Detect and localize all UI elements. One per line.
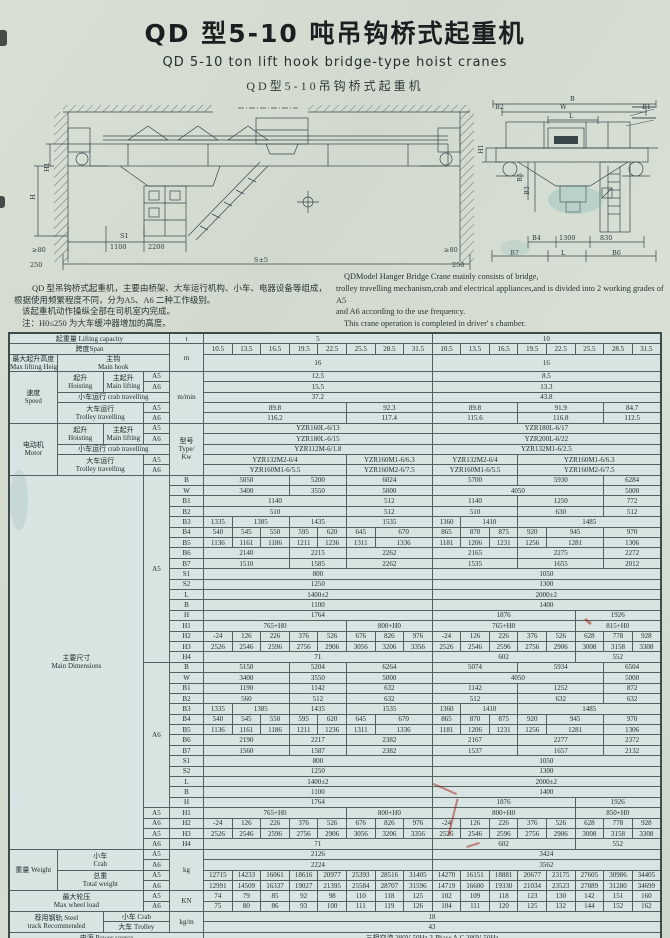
dimension-label: B2 [495,104,504,111]
row-label-cell: B6 [169,548,203,558]
row-label-cell: A6 [143,818,169,828]
value-cell: 1186 [261,538,290,548]
value-cell: 2224 [204,860,433,870]
value-cell: YZR160M1-6/6.3 [346,454,432,464]
value-cell: 13.3 [432,382,661,392]
value-cell: 1510 [204,558,290,568]
row-label-cell: A6 [143,382,169,392]
value-cell: 5000 [346,486,432,496]
value-cell: 118 [375,891,404,901]
value-cell: 1360 [432,704,461,714]
value-cell: 13.5 [461,344,490,354]
value-cell: 92 [289,891,318,901]
value-cell: 976 [404,818,433,828]
value-cell: 28.5 [604,344,633,354]
value-cell: 800+H0 [346,808,432,818]
row-label-cell: A5 [143,849,169,859]
value-cell: 2262 [346,548,432,558]
note-line: This crane operation is completed in dri… [336,318,666,330]
value-cell: 1231 [489,725,518,735]
value-cell: 1140 [204,496,347,506]
value-cell: 1335 [204,704,233,714]
value-cell: 126 [232,818,261,828]
row-label-cell: A5 [143,891,169,901]
value-cell: 1400 [432,787,661,797]
value-cell: 2275 [518,548,604,558]
value-cell: 510 [204,506,347,516]
value-cell: 1281 [547,725,604,735]
dimension-label: B [570,96,575,103]
value-cell: 2012 [604,558,661,568]
value-cell: -24 [432,818,461,828]
table-row: 最大轮压Max wheel loadA5KN747985929811011812… [9,891,661,901]
value-cell: 31596 [404,880,433,890]
value-cell: 5000 [346,673,432,683]
value-cell: 3056 [346,828,375,838]
row-label-cell: B5 [169,725,203,735]
value-cell: 25.5 [346,344,375,354]
row-label-cell: H1 [169,621,203,631]
value-cell: 1140 [432,496,518,506]
value-cell: 512 [604,506,661,516]
value-cell: 79 [232,891,261,901]
value-cell: 1161 [232,538,261,548]
value-cell: 126 [461,631,490,641]
value-cell: 100 [318,901,347,911]
value-cell: 632 [604,693,661,703]
row-label-cell: B [169,475,203,485]
dimension-label: L [569,113,573,120]
value-cell: 2382 [346,735,432,745]
value-cell: 12715 [204,870,233,880]
value-cell: 111 [461,901,490,911]
value-cell: 16600 [461,880,490,890]
row-label-cell: 电动机Motor [9,423,57,475]
value-cell: 20977 [318,870,347,880]
value-cell: 1435 [289,704,346,714]
value-cell: 31280 [604,880,633,890]
row-label-cell: B1 [169,683,203,693]
value-cell: 3008 [575,641,604,651]
value-cell: 2546 [232,828,261,838]
specification-table: 起重量 Lifting capacityt510跨度Spanm10.513.51… [8,332,662,938]
row-label-cell: H2 [169,631,203,641]
value-cell: 3008 [575,828,604,838]
value-cell: 550 [261,714,290,724]
row-label-cell: H3 [169,828,203,838]
value-cell: 117.4 [346,413,432,423]
note-line: 根据使用频繁程度不同，分为A5、A6 二种工作级别。 [14,295,334,307]
value-cell: 23523 [547,880,576,890]
row-label-cell: A5 [143,828,169,838]
value-cell: 5050 [204,475,290,485]
value-cell: 2546 [461,828,490,838]
row-label-cell: B3 [169,517,203,527]
value-cell: 31.5 [632,344,661,354]
value-cell: 16337 [261,880,290,890]
row-label-cell: 起升Hoisting [57,371,103,392]
value-cell: YZR160M1-6/5.5 [204,465,347,475]
value-cell: 16 [432,354,661,371]
value-cell: 628 [575,631,604,641]
value-cell: 18881 [489,870,518,880]
value-cell: 6504 [604,662,661,672]
value-cell: 540 [204,714,233,724]
value-cell: 6264 [346,662,432,672]
value-cell: 1585 [289,558,346,568]
value-cell: 31.5 [404,344,433,354]
value-cell: 5700 [432,475,518,485]
value-cell: 928 [632,631,661,641]
ink-stain [10,470,28,530]
value-cell: 1587 [289,745,346,755]
page-subtitle-en: QD 5-10 ton lift hook bridge-type hoist … [0,55,670,70]
value-cell: 872 [604,683,661,693]
value-cell: 620 [318,714,347,724]
value-cell: 870 [461,527,490,537]
value-cell: 875 [489,527,518,537]
value-cell: 5204 [289,662,346,672]
value-cell: 2372 [604,735,661,745]
value-cell: 3424 [432,849,661,859]
value-cell: 2000±2 [432,589,661,599]
value-cell: 645 [346,714,375,724]
row-label-cell: B6 [169,735,203,745]
value-cell: 1250 [518,496,604,506]
row-label-cell: 总重Total weight [57,870,143,891]
value-cell: 2272 [604,548,661,558]
value-cell: 98 [318,891,347,901]
table-row: 电动机Motor起升Hoisting主起升Main liftingA5型号Typ… [9,423,661,433]
value-cell: 116.8 [518,413,604,423]
value-cell: 27889 [575,880,604,890]
value-cell: 85 [261,891,290,901]
value-cell: 510 [432,506,518,516]
value-cell: 545 [232,527,261,537]
value-cell: 226 [261,631,290,641]
value-cell: 920 [518,527,547,537]
value-cell: 12.5 [204,371,433,381]
value-cell: YZR132M1-6/2.5 [432,444,661,454]
row-label-cell: H4 [169,652,203,662]
value-cell: 1281 [547,538,604,548]
value-cell: 31405 [404,870,433,880]
value-cell: 14509 [232,880,261,890]
value-cell: 89.8 [432,402,518,412]
row-label-cell: A6 [143,465,169,475]
value-cell: 1311 [346,725,375,735]
value-cell: 2526 [432,828,461,838]
value-cell: 23175 [547,870,576,880]
value-cell: 2526 [204,641,233,651]
row-label-cell: A6 [143,413,169,423]
row-label-cell: A6 [143,860,169,870]
value-cell: 25393 [346,870,375,880]
value-cell: 112.5 [604,413,661,423]
page-title: QD 型5-10 吨吊钩桥式起重机 [0,14,670,50]
value-cell: 602 [432,652,575,662]
note-line: QDModel Hanger Bridge Crane mainly consi… [336,271,666,283]
value-cell: 160 [632,891,661,901]
value-cell: 3562 [432,860,661,870]
value-cell: 1764 [204,610,433,620]
value-cell: 5074 [432,662,518,672]
value-cell: 16.5 [489,344,518,354]
value-cell: 89.8 [204,402,347,412]
value-cell: 2215 [289,548,346,558]
illegible-annotation [632,117,656,119]
value-cell: 162 [632,901,661,911]
value-cell: YZR160M2-6/7.5 [518,465,661,475]
value-cell: 552 [575,652,661,662]
dimension-label: 1100 [110,244,127,251]
value-cell: 226 [261,818,290,828]
value-cell: 376 [289,818,318,828]
value-cell: 778 [604,631,633,641]
scan-edge-mark [0,196,5,208]
row-label-cell: A5 [143,423,169,433]
value-cell: 2906 [318,828,347,838]
value-cell: 226 [489,631,518,641]
row-label-cell: L [169,777,203,787]
value-cell: 19.5 [518,344,547,354]
value-cell: 1211 [289,725,318,735]
row-label-cell: t [169,333,203,344]
value-cell: 14270 [432,870,461,880]
value-cell: 19027 [289,880,318,890]
value-cell: 526 [318,631,347,641]
row-label-cell: A5 [143,475,169,662]
row-label-cell: 小车运行 crab travelling [57,444,169,454]
value-cell: 1190 [204,683,290,693]
value-cell: 1311 [346,538,375,548]
row-label-cell: B [169,600,203,610]
value-cell: 22.5 [318,344,347,354]
value-cell: 2756 [289,641,318,651]
value-cell: 37.2 [204,392,433,402]
value-cell: YZR200L-6/22 [432,434,661,444]
notes-chinese: QD 型吊钩桥式起重机，主要由桥架、大车运行机构、小车、电器设备等组成， 根据使… [14,283,334,329]
value-cell: 16.5 [261,344,290,354]
value-cell: 1236 [318,725,347,735]
row-label-cell: A5 [143,870,169,880]
value-cell: 1206 [461,725,490,735]
value-cell: 92.3 [346,402,432,412]
table-row: 荐用钢轨 Steeltrack Recommended小车 Crabkg/m18 [9,912,661,922]
value-cell: 14719 [432,880,461,890]
value-cell: 144 [575,901,604,911]
value-cell: 16151 [461,870,490,880]
value-cell: 1435 [289,517,346,527]
row-label-cell: B4 [169,714,203,724]
dimension-label: B5 [517,173,524,182]
value-cell: 676 [346,818,375,828]
value-cell: 25.5 [575,344,604,354]
ink-stain [500,240,530,256]
value-cell: 12991 [204,880,233,890]
dimension-label: L [561,250,565,257]
value-cell: 1535 [346,704,432,714]
table-row: 小车运行 crab travelling37.243.8 [9,392,661,402]
value-cell: 2596 [489,828,518,838]
value-cell: 1256 [518,725,547,735]
row-label-cell: A5 [143,402,169,412]
value-cell: 2906 [547,828,576,838]
value-cell: 2140 [204,548,290,558]
dimension-label: H1 [44,162,51,172]
value-cell: 75 [204,901,233,911]
row-label-cell: B2 [169,506,203,516]
value-cell: 1764 [204,797,433,807]
value-cell: 2000±2 [432,777,661,787]
value-cell: YZR160M1-6/6.3 [518,454,661,464]
row-label-cell: m/min [169,371,203,423]
ink-stain [548,186,603,214]
value-cell: 1400 [432,600,661,610]
value-cell: -24 [432,631,461,641]
value-cell: 928 [632,818,661,828]
note-line: trolley travelling mechanism,crab and el… [336,283,666,307]
value-cell: 1537 [432,745,518,755]
value-cell: 1400±2 [204,777,433,787]
value-cell: 526 [318,818,347,828]
value-cell: 18616 [289,870,318,880]
value-cell: 632 [346,693,432,703]
dimension-label: 1300 [559,235,576,242]
row-label-cell: 主起升Main lifting [103,371,143,392]
value-cell: 8.5 [432,371,661,381]
value-cell: 540 [204,527,233,537]
value-cell: 632 [518,693,604,703]
row-label-cell: S2 [169,579,203,589]
note-line: 注：H0≤250 为大车缓冲器增加的高度。 [14,318,334,330]
value-cell: 1181 [432,538,461,548]
value-cell: 826 [375,631,404,641]
value-cell: 1485 [518,517,661,527]
value-cell: 1485 [518,704,661,714]
value-cell: 126 [461,818,490,828]
value-cell: 2756 [518,828,547,838]
value-cell: 552 [575,839,661,849]
value-cell: 104 [432,901,461,911]
table-row: 跨度Spanm10.513.516.519.522.525.528.531.51… [9,344,661,354]
row-label-cell: B7 [169,558,203,568]
value-cell: 2546 [461,641,490,651]
dimension-label: B4 [532,235,541,242]
value-cell: 512 [432,693,518,703]
value-cell: 1300 [432,766,661,776]
value-cell: 376 [289,631,318,641]
value-cell: 970 [604,527,661,537]
value-cell: 116.2 [204,413,347,423]
table-row: 大车运行Trolley travellingA589.892.389.891.9… [9,402,661,412]
value-cell: 5934 [518,662,604,672]
row-label-cell: B1 [169,496,203,506]
value-cell: 645 [346,527,375,537]
value-cell: YZR160M2-6/7.5 [346,465,432,475]
value-cell: 1410 [461,704,518,714]
value-cell: 93 [289,901,318,911]
table-row: 电源 Power source三相交流 380V 50Hz 3-Phase A.… [9,932,661,938]
value-cell: 10.5 [432,344,461,354]
value-cell: 1300 [432,579,661,589]
value-cell: 74 [204,891,233,901]
table-row: 大车运行Trolley travellingA5YZR132M2-6/4YZR1… [9,454,661,464]
value-cell: 1250 [204,766,433,776]
value-cell: 2596 [261,641,290,651]
value-cell: 1142 [289,683,346,693]
value-cell: 34699 [632,880,661,890]
value-cell: 3158 [604,641,633,651]
value-cell: YZR180L-6/17 [432,423,661,433]
value-cell: 2190 [204,735,290,745]
value-cell: 3308 [632,641,661,651]
value-cell: 920 [518,714,547,724]
value-cell: 5150 [204,662,290,672]
value-cell: 2217 [289,735,346,745]
row-label-cell: 荐用钢轨 Steeltrack Recommended [9,912,103,933]
value-cell: 1100 [204,787,433,797]
value-cell: 28.5 [375,344,404,354]
value-cell: 772 [604,496,661,506]
value-cell: 1206 [461,538,490,548]
value-cell: 111 [346,901,375,911]
row-label-cell: S2 [169,766,203,776]
row-label-cell: H4 [169,839,203,849]
value-cell: 120 [489,901,518,911]
row-label-cell: kg [169,849,203,891]
value-cell: 1186 [261,725,290,735]
value-cell: -24 [204,631,233,641]
value-cell: 5930 [518,475,604,485]
row-label-cell: 主要尺寸Main Dimensions [9,475,143,849]
value-cell: 2596 [261,828,290,838]
value-cell: 6024 [346,475,432,485]
value-cell: 三相交流 380V 50Hz 3-Phase A.C 380V 50Hz [204,932,661,938]
table-row: 主要尺寸Main DimensionsA5B505052006024570059… [9,475,661,485]
dimension-label: S1 [120,233,129,240]
dimension-label: ≥80 [32,247,46,254]
value-cell: 80 [232,901,261,911]
value-cell: 865 [432,527,461,537]
value-cell: 1336 [375,538,432,548]
value-cell: 43.8 [432,392,661,402]
value-cell: 126 [232,631,261,641]
value-cell: 2526 [204,828,233,838]
value-cell: 1050 [432,569,661,579]
row-label-cell: A6 [143,434,169,444]
row-label-cell: 最大轮压Max wheel load [9,891,143,912]
value-cell: 34405 [632,870,661,880]
value-cell: 670 [375,527,432,537]
value-cell: 1236 [318,538,347,548]
value-cell: 14233 [232,870,261,880]
value-cell: 970 [604,714,661,724]
value-cell: 1250 [204,579,433,589]
value-cell: 1385 [232,704,289,714]
value-cell: 2382 [346,745,432,755]
row-label-cell: A5 [143,454,169,464]
row-label-cell: A6 [143,662,169,807]
value-cell: 13.5 [232,344,261,354]
dimension-label: S±5 [254,257,268,264]
value-cell: 800 [204,756,433,766]
value-cell: -24 [204,818,233,828]
dimension-label: H1 [478,144,485,154]
value-cell: 119 [375,901,404,911]
value-cell: 1231 [489,538,518,548]
row-label-cell: H [169,797,203,807]
